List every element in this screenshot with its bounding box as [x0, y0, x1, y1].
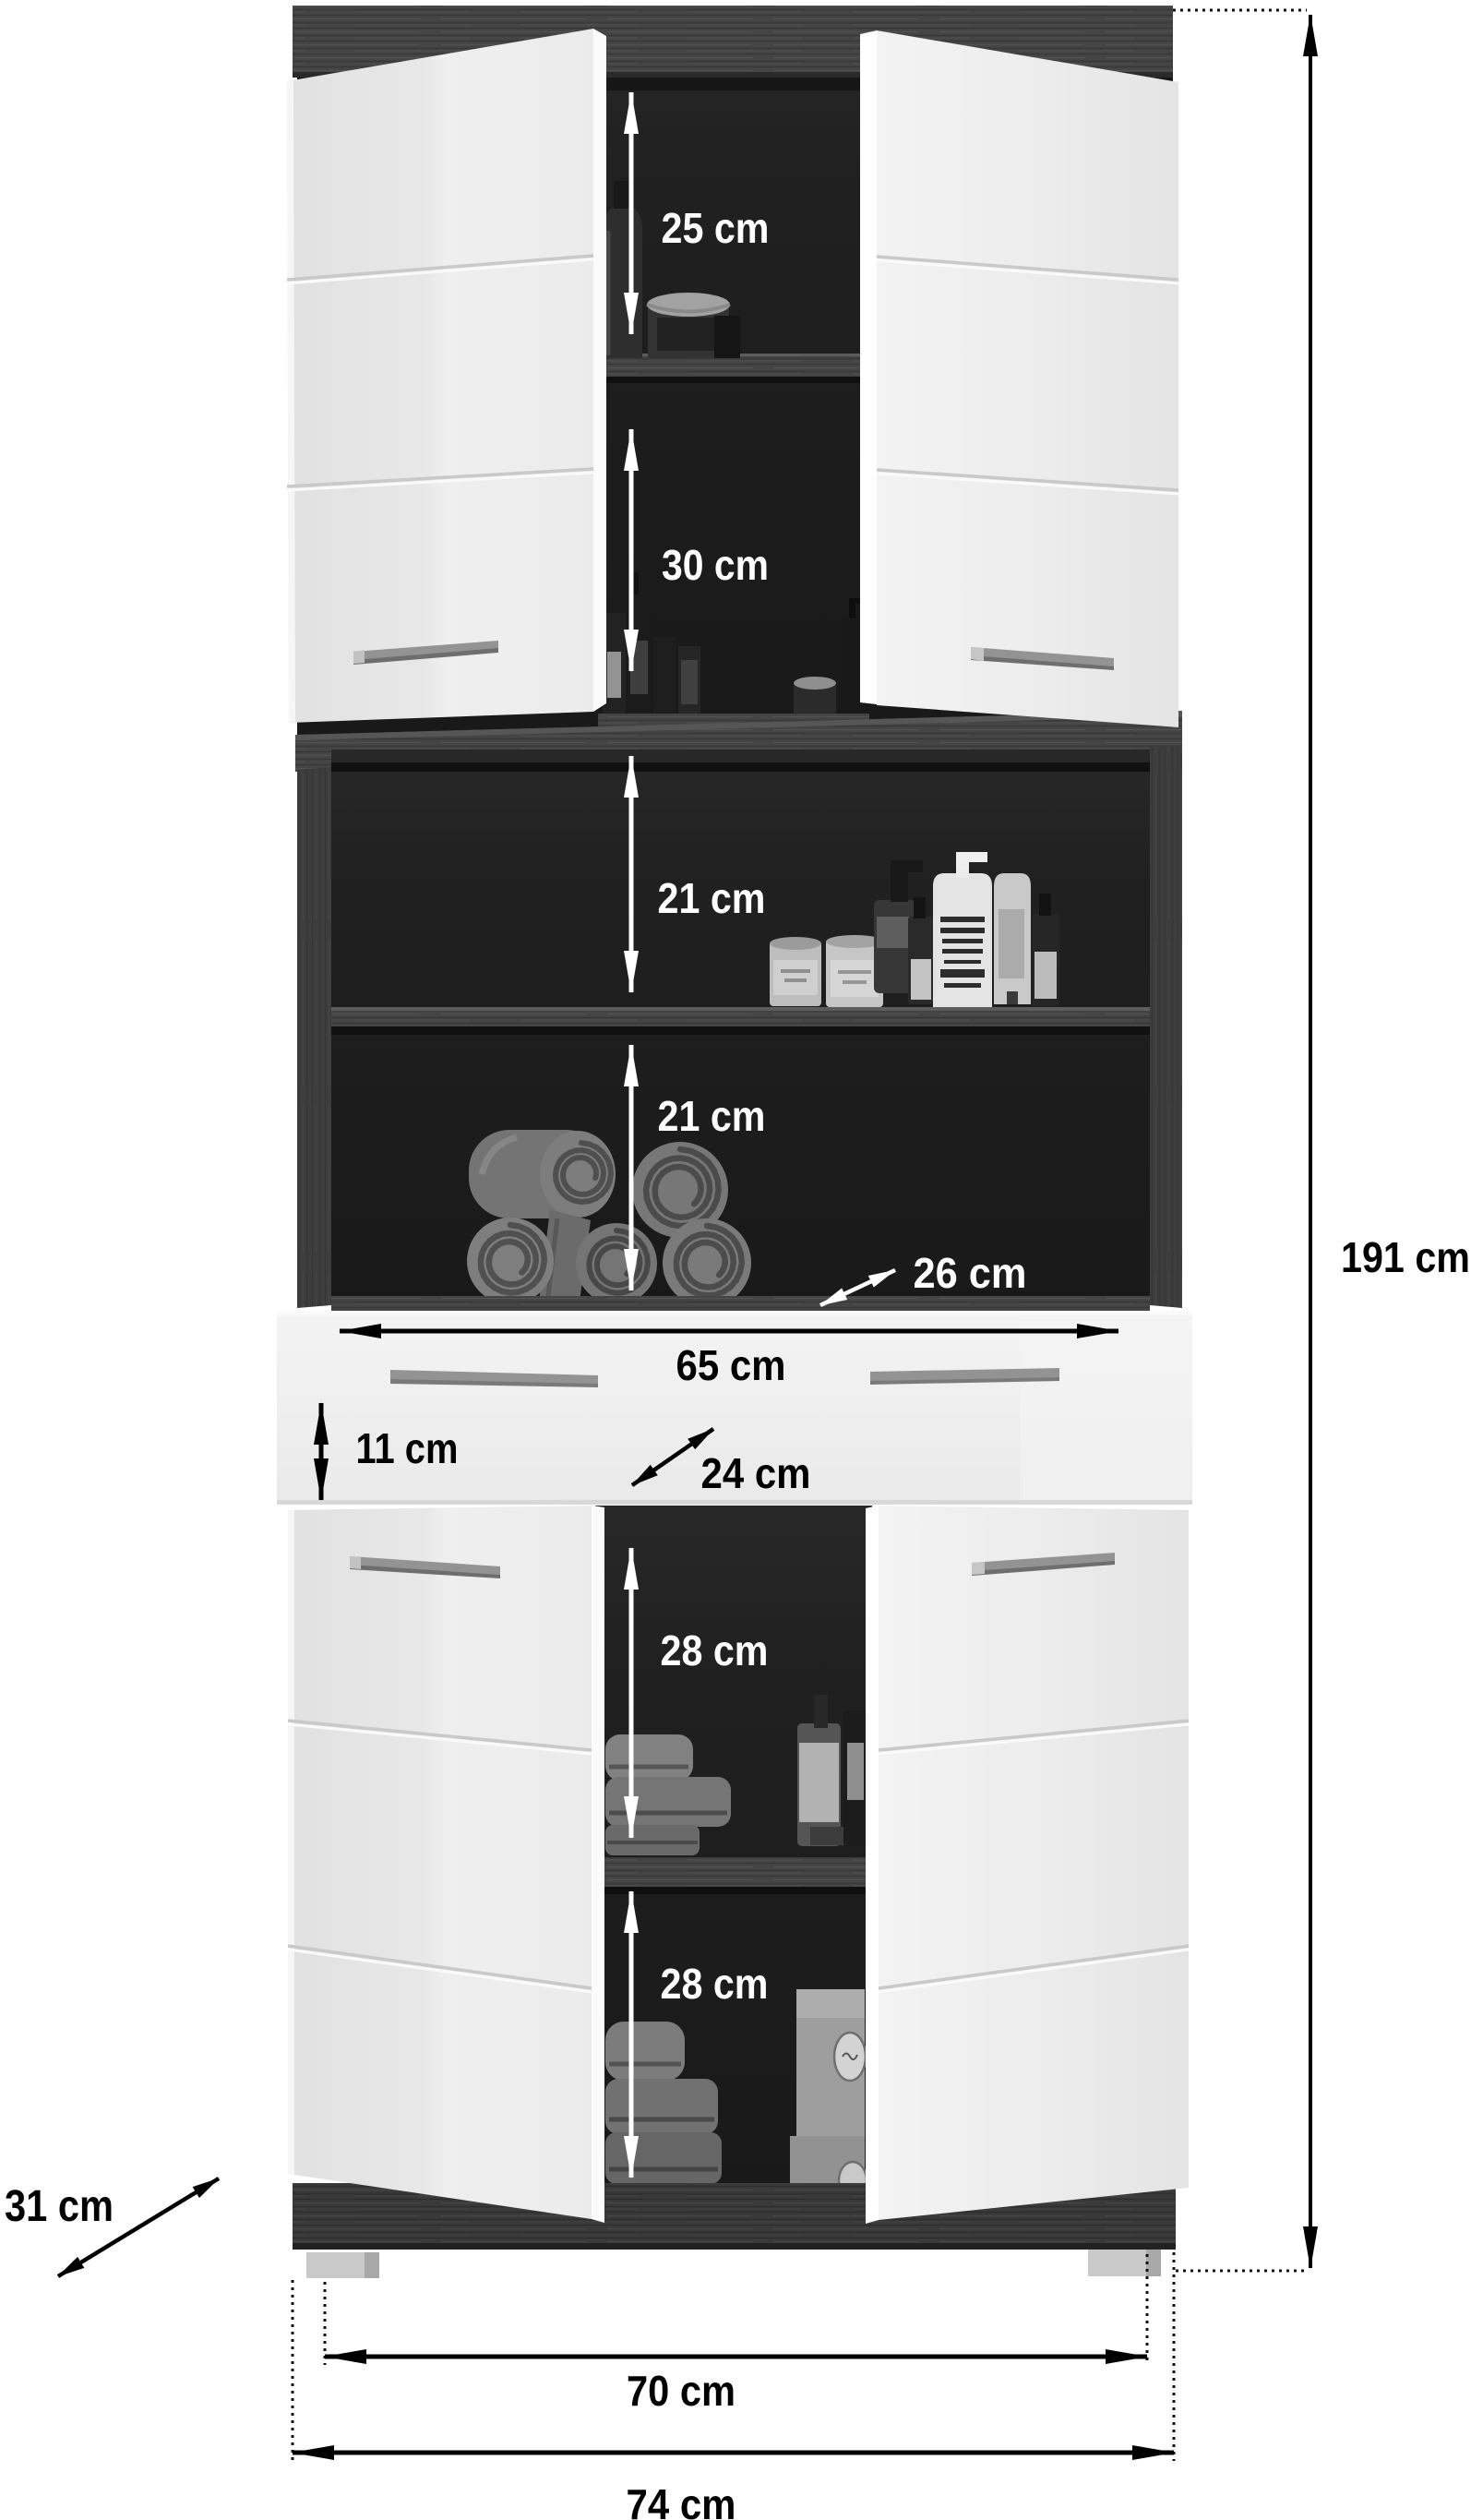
svg-text:21 cm: 21 cm: [658, 874, 766, 922]
svg-text:24 cm: 24 cm: [701, 1449, 811, 1497]
svg-text:74 cm: 74 cm: [627, 2480, 736, 2520]
svg-text:26 cm: 26 cm: [914, 1249, 1027, 1297]
svg-text:21 cm: 21 cm: [658, 1092, 766, 1140]
svg-text:11 cm: 11 cm: [356, 1424, 459, 1472]
svg-text:65 cm: 65 cm: [676, 1341, 786, 1389]
svg-text:31 cm: 31 cm: [5, 2182, 114, 2231]
svg-text:28 cm: 28 cm: [661, 1960, 769, 2008]
svg-text:191 cm: 191 cm: [1341, 1233, 1470, 1281]
svg-text:28 cm: 28 cm: [661, 1626, 769, 1674]
svg-text:25 cm: 25 cm: [662, 204, 770, 252]
svg-text:70 cm: 70 cm: [627, 2367, 735, 2415]
svg-text:30 cm: 30 cm: [662, 541, 769, 589]
